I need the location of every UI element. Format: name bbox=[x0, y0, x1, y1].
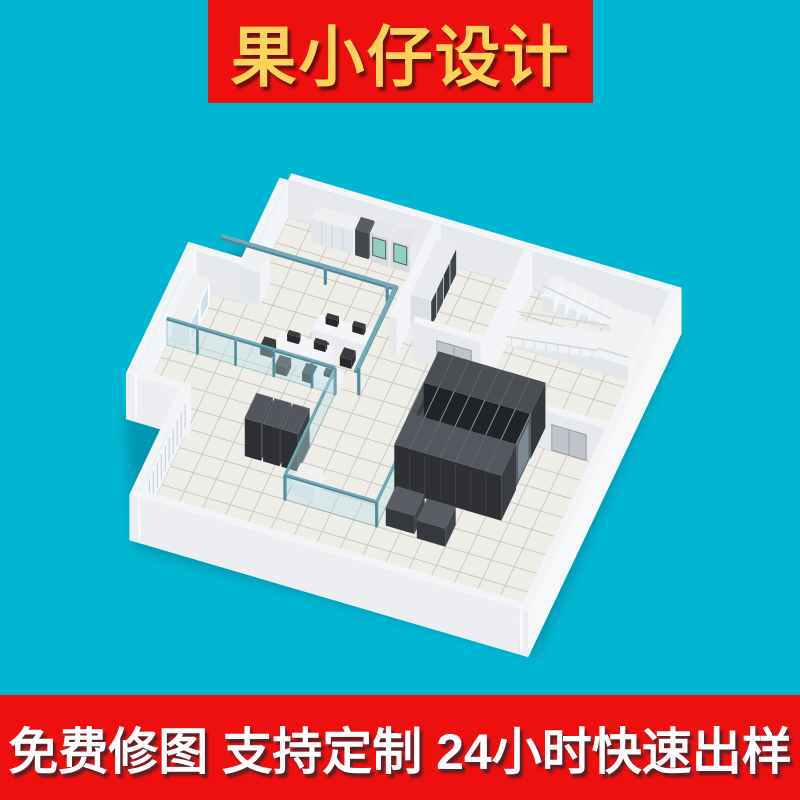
bottom-banner: 免费修图 支持定制 24小时快速出样 bbox=[0, 695, 800, 800]
promo-image: 果小仔设计 免费修图 支持定制 24小时快速出样 bbox=[0, 0, 800, 800]
bottom-banner-text: 免费修图 支持定制 24小时快速出样 bbox=[8, 712, 791, 784]
top-banner-text: 果小仔设计 bbox=[231, 4, 571, 100]
top-banner: 果小仔设计 bbox=[208, 0, 593, 103]
floorplan-3d-render bbox=[0, 0, 800, 800]
